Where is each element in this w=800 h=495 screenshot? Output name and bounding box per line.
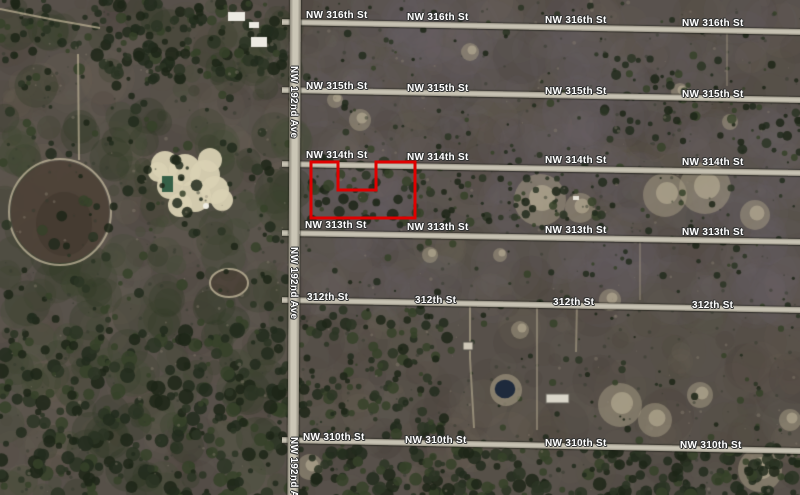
street-label: NW 316th St <box>306 10 368 21</box>
avenue-label: NW 192nd Ave <box>288 437 299 495</box>
street-label: NW 313th St <box>407 222 469 233</box>
street-label: NW 310th St <box>545 438 607 449</box>
avenue-label: NW 192nd Ave <box>288 247 299 319</box>
street-label: 312th St <box>307 292 348 303</box>
street-label: NW 314th St <box>682 157 744 168</box>
satellite-terrain-imagery <box>0 0 800 495</box>
street-label: NW 313th St <box>305 220 367 231</box>
street-label: NW 310th St <box>405 435 467 446</box>
street-label: NW 314th St <box>306 150 368 161</box>
street-label: NW 310th St <box>680 440 742 451</box>
street-label: NW 315th St <box>306 81 368 92</box>
street-label: NW 316th St <box>545 15 607 26</box>
street-label: 312th St <box>553 297 594 308</box>
street-label: NW 315th St <box>407 83 469 94</box>
street-label: NW 313th St <box>682 227 744 238</box>
street-label: NW 314th St <box>407 152 469 163</box>
street-label: 312th St <box>415 295 456 306</box>
avenue-label: NW 192nd Ave <box>288 66 299 138</box>
street-label: NW 314th St <box>545 155 607 166</box>
street-label: NW 316th St <box>682 18 744 29</box>
street-label: NW 315th St <box>682 89 744 100</box>
street-label: NW 310th St <box>303 432 365 443</box>
street-label: NW 315th St <box>545 86 607 97</box>
street-label: NW 313th St <box>545 225 607 236</box>
street-label: NW 316th St <box>407 12 469 23</box>
street-label: 312th St <box>692 300 733 311</box>
map-viewport[interactable]: NW 316th StNW 316th StNW 316th StNW 316t… <box>0 0 800 495</box>
